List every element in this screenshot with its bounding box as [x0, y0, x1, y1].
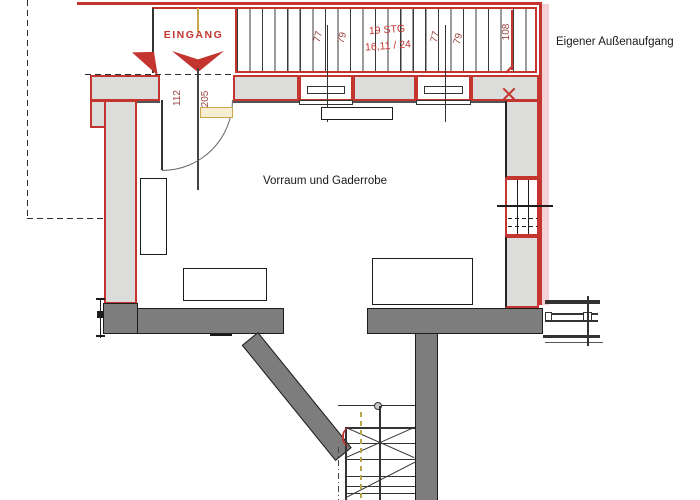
radiator: [321, 107, 393, 120]
stair-direction-mark: [342, 427, 351, 447]
bottom-wall-right: [367, 308, 543, 334]
top-wall-segment-2: [233, 75, 299, 101]
exterior-steps-lower-line: [545, 342, 603, 343]
exterior-note: Eigener Außenaufgang: [556, 37, 674, 49]
exterior-steps-rail-2: [545, 320, 598, 322]
window-1-glazing: [307, 86, 345, 94]
bottom-wall-corner-block: [103, 303, 138, 334]
dimension-112: 112: [173, 80, 183, 116]
stairwell-wall: [415, 333, 438, 500]
dim-tick-bottom: [96, 335, 105, 337]
bottom-wall-tick: [210, 333, 232, 336]
hinge-mark: [97, 311, 103, 318]
bottom-wall-left: [137, 308, 284, 334]
exterior-steps-axis: [587, 296, 589, 346]
wall-axis-dashdot: [338, 447, 339, 500]
newel-post: [374, 402, 382, 410]
side-window-centerline: [497, 205, 553, 207]
dim-tick-top: [96, 298, 105, 300]
property-dashed-line-vertical: [27, 0, 28, 219]
door-leaf: [161, 100, 163, 170]
right-wall-upper: [505, 100, 539, 178]
sideboard-1: [183, 268, 267, 301]
axis-line-window-2: [445, 25, 446, 122]
window-2-glazing: [424, 86, 463, 94]
left-wall: [104, 100, 137, 304]
top-wall-segment-left: [90, 75, 160, 101]
right-wall-lower: [505, 236, 539, 308]
lower-stairs-tread: [345, 486, 415, 487]
dimension-205: 205: [201, 81, 211, 117]
window-2: [416, 75, 471, 101]
room-label: Vorraum und Gaderrobe: [263, 176, 387, 188]
boundary-pink-tint: [541, 4, 549, 305]
sideboard-2: [372, 258, 473, 305]
exterior-steps-top: [545, 300, 600, 304]
wardrobe: [140, 178, 167, 255]
boundary-line-top: [77, 2, 541, 5]
side-window: [505, 178, 539, 236]
window-1: [299, 75, 353, 101]
stair-walkline-dashed: [360, 412, 362, 500]
diagonal-wall: [242, 332, 352, 461]
lower-stairs-tread: [345, 459, 415, 460]
window-1-sill: [299, 100, 353, 105]
side-window-dash-2: [508, 226, 538, 227]
floor-plan: EINGANG 19 STG 16,11 / 24 77 79 77 79 10…: [0, 0, 700, 500]
lower-stairs-tread: [345, 476, 415, 477]
boundary-line-right: [539, 2, 542, 305]
dimension-108: 108: [502, 14, 512, 50]
side-window-dash-1: [508, 218, 538, 219]
exterior-steps-base: [543, 335, 600, 338]
top-wall-segment-3: [353, 75, 416, 101]
dim-tick-line: [100, 298, 101, 338]
entrance-label: EINGANG: [152, 30, 235, 41]
lower-stairs-tread: [345, 427, 415, 429]
window-2-sill: [416, 100, 471, 105]
